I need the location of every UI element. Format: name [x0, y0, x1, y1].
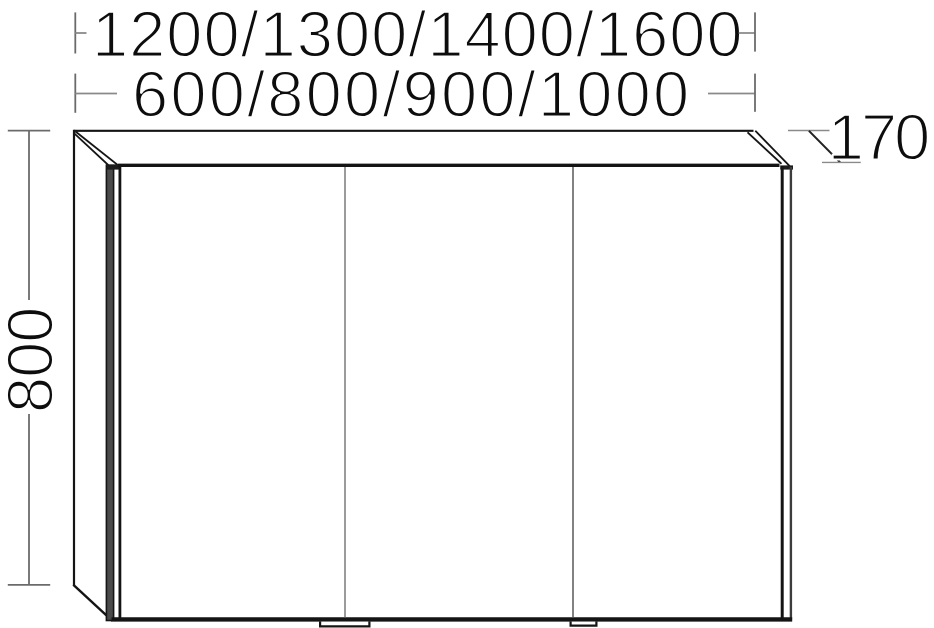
svg-text:600/800/900/1000: 600/800/900/1000	[132, 58, 691, 131]
svg-text:170: 170	[828, 100, 928, 173]
svg-text:800: 800	[0, 308, 67, 413]
